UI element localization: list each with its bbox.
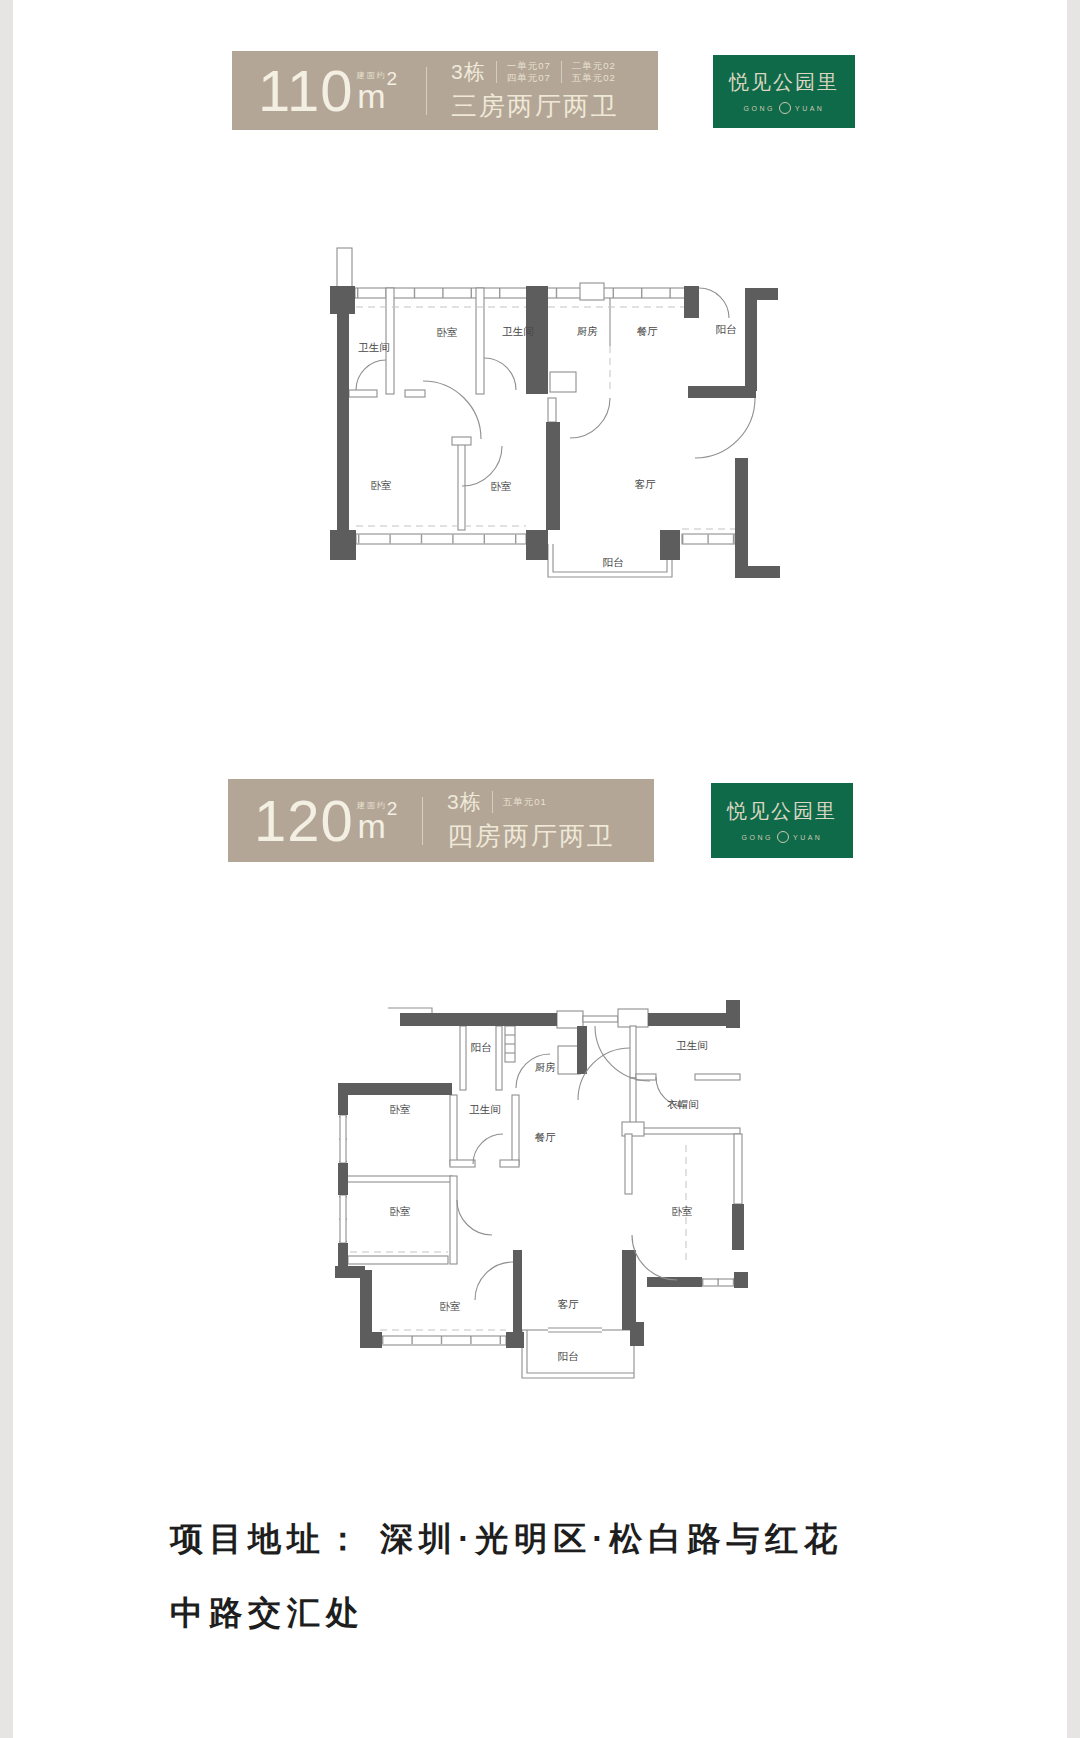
room-label-bath-m: 卫生间 bbox=[469, 1103, 501, 1115]
unit-column-1: 一单元07 四单元07 bbox=[507, 60, 551, 84]
banner-divider bbox=[426, 67, 427, 115]
room-label-bath-tr: 卫生间 bbox=[676, 1039, 708, 1051]
floorplan-110-drawing: 卫生间 卧室 卫生间 厨房 餐厅 阳台 卧室 卧室 客厅 阳台 bbox=[280, 226, 780, 586]
brand-sub-right: YUAN bbox=[795, 105, 824, 112]
layout-name: 三房两厅两卫 bbox=[451, 89, 619, 124]
area-unit: m bbox=[357, 81, 385, 111]
unit-column-1: 五单元01 bbox=[503, 796, 547, 808]
room-label-bed-r: 卧室 bbox=[672, 1205, 693, 1217]
brand-name: 悦见公园里 bbox=[727, 798, 837, 825]
brand-seal-icon bbox=[779, 102, 791, 114]
room-label-balcony-t: 阳台 bbox=[471, 1041, 492, 1053]
room-label-bed-b: 卧室 bbox=[440, 1300, 461, 1312]
room-label-bath1: 卫生间 bbox=[358, 341, 390, 353]
room-label-kitchen: 厨房 bbox=[535, 1061, 557, 1073]
unit-divider bbox=[492, 791, 493, 813]
room-label-cloak: 衣帽间 bbox=[667, 1098, 699, 1110]
room-label-bed3: 卧室 bbox=[491, 480, 512, 492]
room-label-bed-l2: 卧室 bbox=[390, 1205, 411, 1217]
flyer-page: 110 建面约 m 2 3栋 一单元07 四单元07 二单元02 五单元02 bbox=[0, 0, 1080, 1738]
room-label-living: 客厅 bbox=[635, 478, 657, 490]
unit-divider bbox=[561, 61, 562, 83]
room-label-bath2: 卫生间 bbox=[502, 325, 534, 337]
unit-column-2: 二单元02 五单元02 bbox=[572, 60, 616, 84]
area-110: 110 建面约 m 2 bbox=[232, 56, 426, 126]
room-label-bed-l1: 卧室 bbox=[390, 1103, 411, 1115]
room-label-dining: 餐厅 bbox=[535, 1131, 557, 1143]
building-label: 3栋 bbox=[451, 58, 486, 86]
project-address: 项目地址： 深圳·光明区·松白路与红花 中路交汇处 bbox=[170, 1502, 843, 1650]
area-value: 110 bbox=[258, 56, 353, 126]
right-gray-edge bbox=[1067, 0, 1080, 1738]
brand-logo-120: 悦见公园里 GONG YUAN bbox=[711, 783, 853, 858]
banner-110: 110 建面约 m 2 3栋 一单元07 四单元07 二单元02 五单元02 bbox=[232, 51, 658, 130]
brand-sub-right: YUAN bbox=[793, 834, 822, 841]
banner-divider bbox=[422, 797, 423, 845]
brand-sub-left: GONG bbox=[744, 105, 775, 112]
address-line-2: 中路交汇处 bbox=[170, 1576, 843, 1650]
window-ticks bbox=[343, 1116, 734, 1340]
brand-name: 悦见公园里 bbox=[729, 69, 839, 96]
building-label: 3栋 bbox=[447, 788, 482, 816]
brand-seal-icon bbox=[777, 831, 789, 843]
area-sup: 2 bbox=[386, 68, 397, 90]
address-line-1: 项目地址： 深圳·光明区·松白路与红花 bbox=[170, 1502, 843, 1576]
room-label-balcony-b: 阳台 bbox=[558, 1350, 579, 1362]
area-value: 120 bbox=[254, 786, 354, 856]
room-label-balcony-r: 阳台 bbox=[716, 323, 737, 335]
brand-logo-110: 悦见公园里 GONG YUAN bbox=[713, 55, 855, 128]
area-sup: 2 bbox=[387, 798, 398, 820]
room-label-living: 客厅 bbox=[558, 1298, 580, 1310]
unit-divider bbox=[496, 61, 497, 83]
left-gray-edge bbox=[0, 0, 13, 1738]
room-label-kitchen: 厨房 bbox=[577, 325, 599, 337]
room-label-bed2: 卧室 bbox=[371, 479, 392, 491]
area-120: 120 建面约 m 2 bbox=[228, 786, 422, 856]
banner-120: 120 建面约 m 2 3栋 五单元01 四房两厅两卫 bbox=[228, 779, 654, 862]
area-unit: m bbox=[358, 811, 386, 841]
room-label-balcony-b: 阳台 bbox=[603, 556, 624, 568]
room-label-bed1: 卧室 bbox=[437, 326, 458, 338]
room-label-dining: 餐厅 bbox=[637, 325, 659, 337]
brand-sub-left: GONG bbox=[742, 834, 773, 841]
layout-name: 四房两厅两卫 bbox=[447, 819, 615, 854]
floorplan-120-drawing: 阳台 厨房 卫生间 卧室 卫生间 餐厅 衣帽间 卧室 卧室 卧室 客厅 阳台 bbox=[300, 1000, 760, 1390]
